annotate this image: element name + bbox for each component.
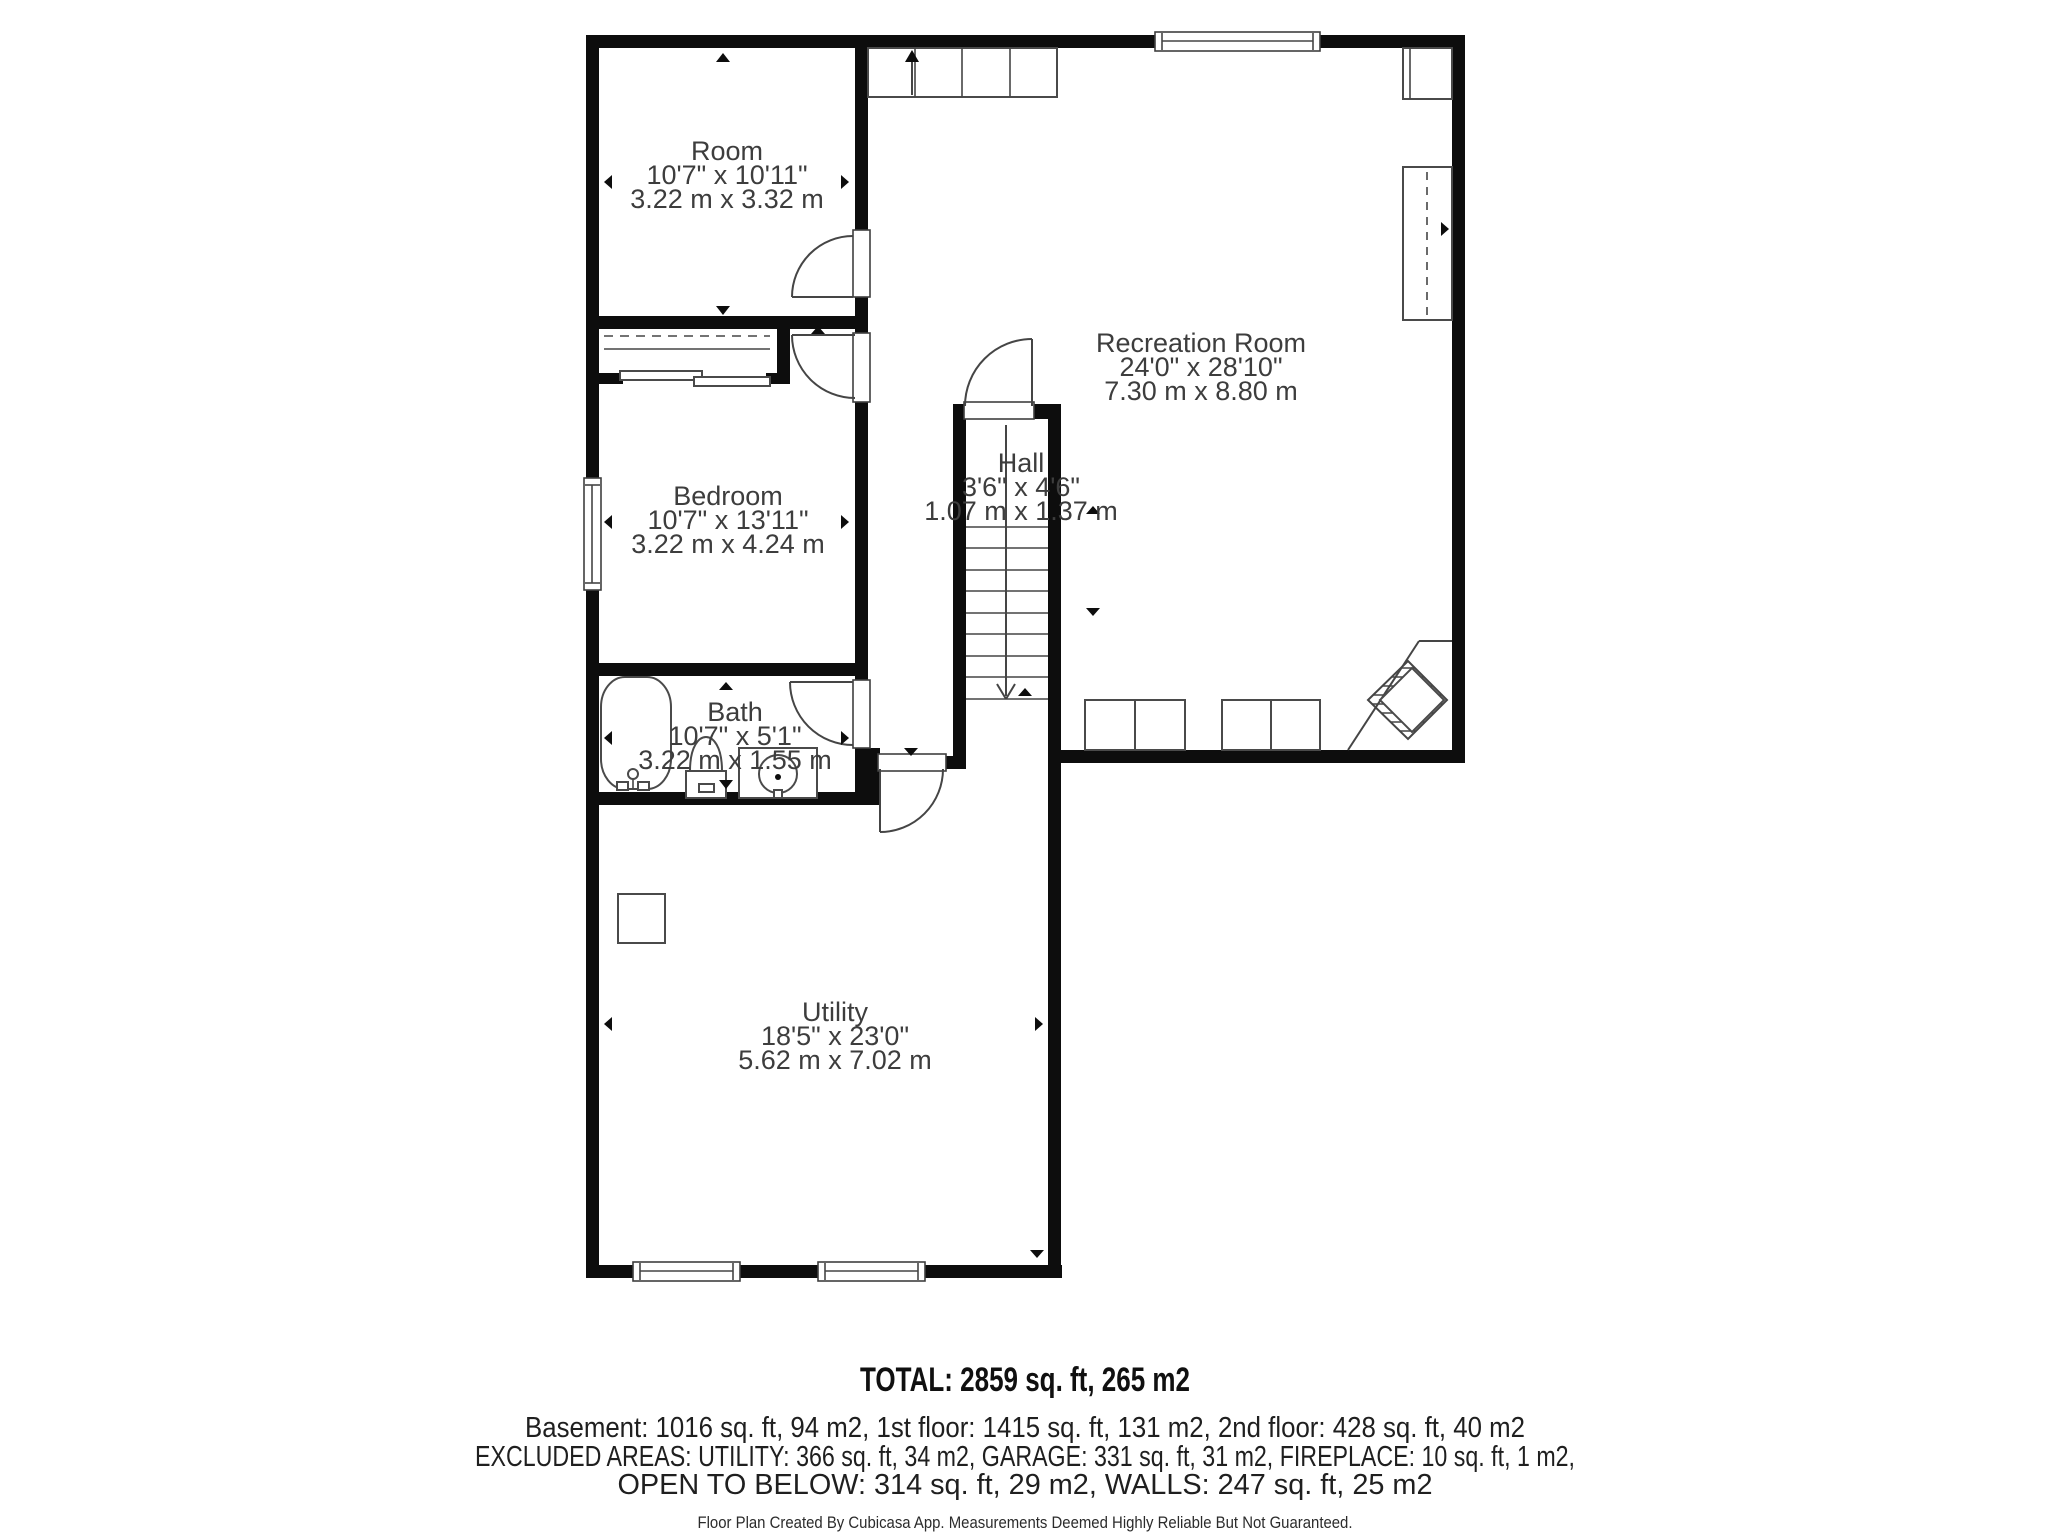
- footer-summary: TOTAL: 2859 sq. ft, 265 m2 Basement: 101…: [475, 1361, 1575, 1532]
- closet: [604, 336, 770, 386]
- room-labels: Room 10'7" x 10'11" 3.22 m x 3.32 m Recr…: [630, 136, 1306, 1075]
- footer-total: TOTAL: 2859 sq. ft, 265 m2: [860, 1361, 1190, 1399]
- window-recreation-top: [1155, 32, 1320, 51]
- window-utility-2: [818, 1262, 925, 1281]
- bedroom-label-metric: 3.22 m x 4.24 m: [631, 529, 825, 559]
- window-utility-1: [633, 1262, 740, 1281]
- room-label-metric: 3.22 m x 3.32 m: [630, 184, 824, 214]
- utility-post: [618, 894, 665, 943]
- recreation-label-metric: 7.30 m x 8.80 m: [1104, 376, 1298, 406]
- door-bedroom: [792, 333, 870, 402]
- seat-modules: [1085, 700, 1320, 750]
- fireplace-icon: [1348, 641, 1457, 750]
- door-hall: [964, 339, 1034, 419]
- cabinet: [1403, 48, 1452, 99]
- bath-label-metric: 3.22 m x 1.55 m: [638, 745, 832, 775]
- door-utility: [878, 754, 946, 832]
- floor-plan-svg: Room 10'7" x 10'11" 3.22 m x 3.32 m Recr…: [0, 0, 2048, 1536]
- floor-plan-page: Room 10'7" x 10'11" 3.22 m x 3.32 m Recr…: [0, 0, 2048, 1536]
- utility-label-metric: 5.62 m x 7.02 m: [738, 1045, 932, 1075]
- sliding-door: [620, 371, 770, 386]
- footer-floors: Basement: 1016 sq. ft, 94 m2, 1st floor:…: [525, 1412, 1525, 1444]
- footer-excluded-line2: OPEN TO BELOW: 314 sq. ft, 29 m2, WALLS:…: [618, 1469, 1433, 1501]
- footer-disclaimer: Floor Plan Created By Cubicasa App. Meas…: [698, 1513, 1353, 1532]
- media-unit: [1403, 167, 1452, 320]
- windows: [584, 32, 1320, 1281]
- hall-label-metric: 1.07 m x 1.37 m: [924, 496, 1118, 526]
- door-bath: [790, 680, 870, 748]
- door-room: [792, 230, 870, 297]
- window-bedroom-left: [584, 478, 601, 590]
- staircase-upper: [868, 48, 1057, 97]
